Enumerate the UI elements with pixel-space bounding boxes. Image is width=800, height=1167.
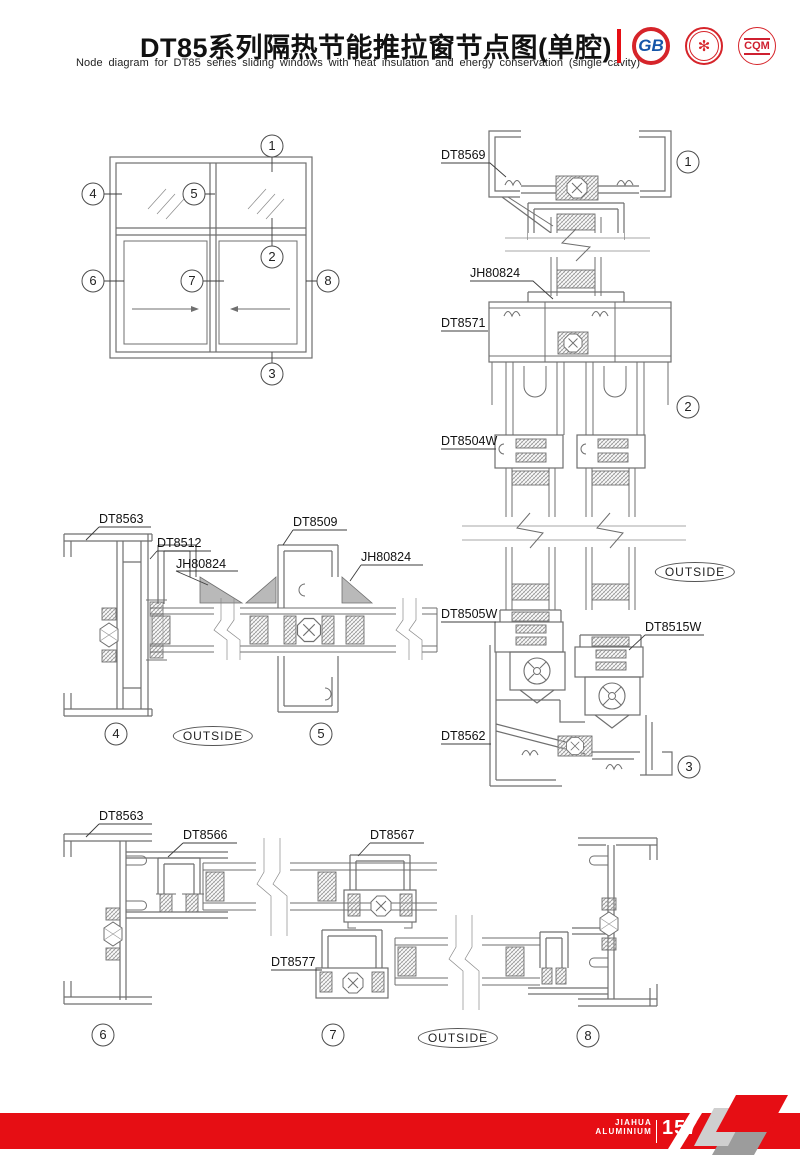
- section-callout-6: 6: [92, 1024, 114, 1046]
- callout-1: 1: [261, 135, 283, 157]
- gb-logo-text: GB: [638, 36, 664, 56]
- callout-7: 7: [181, 270, 203, 292]
- label-dt8569: DT8569: [441, 148, 485, 162]
- vertical-section-drawing: [441, 131, 704, 786]
- label-dt8566: DT8566: [183, 828, 227, 842]
- label-jh80824-right: JH80824: [361, 550, 411, 564]
- outside-label-vertical: OUTSIDE: [655, 562, 735, 582]
- diagram-canvas: .ln{stroke:#6f6f6f;fill:none;stroke-widt…: [0, 0, 800, 1167]
- seal-star-icon: ✻: [689, 31, 719, 61]
- callout-3: 3: [261, 363, 283, 385]
- footer-brand-line2: ALUMINIUM: [595, 1127, 652, 1136]
- footer-brand: JIAHUA ALUMINIUM: [595, 1118, 652, 1136]
- section-callout-2: 2: [677, 396, 699, 418]
- section-callout-4: 4: [105, 723, 127, 745]
- section-callout-7: 7: [322, 1024, 344, 1046]
- page-number: 157: [662, 1117, 698, 1140]
- certification-seal-icon: ✻: [685, 27, 723, 65]
- catalog-page: DT85系列隔热节能推拉窗节点图(单腔) Node diagram for DT…: [0, 0, 800, 1167]
- elevation-diagram: [82, 135, 339, 385]
- section-callout-3: 3: [678, 756, 700, 778]
- label-dt8563-top: DT8563: [99, 512, 143, 526]
- certification-logo-cqm: CQM: [738, 27, 776, 65]
- page-subtitle: Node diagram for DT85 series sliding win…: [76, 57, 614, 69]
- callout-5: 5: [183, 183, 205, 205]
- label-dt8505w: DT8505W: [441, 607, 497, 621]
- callout-8: 8: [317, 270, 339, 292]
- label-dt8504w: DT8504W: [441, 434, 497, 448]
- section-callout-1: 1: [677, 151, 699, 173]
- horizontal-section-bottom-drawing: [64, 824, 657, 1047]
- label-jh80824-vertical: JH80824: [470, 266, 520, 280]
- header-divider: [617, 29, 621, 63]
- cqm-logo-text: CQM: [744, 38, 770, 55]
- label-dt8567: DT8567: [370, 828, 414, 842]
- section-callout-8: 8: [577, 1025, 599, 1047]
- callout-4: 4: [82, 183, 104, 205]
- callout-2: 2: [261, 246, 283, 268]
- label-dt8512: DT8512: [157, 536, 201, 550]
- label-dt8509: DT8509: [293, 515, 337, 529]
- label-dt8571: DT8571: [441, 316, 485, 330]
- label-dt8577: DT8577: [271, 955, 315, 969]
- section-callout-5: 5: [310, 723, 332, 745]
- label-dt8515w: DT8515W: [645, 620, 701, 634]
- certification-logo-gb: GB: [632, 27, 670, 65]
- label-jh80824-left: JH80824: [176, 557, 226, 571]
- outside-label-bottom: OUTSIDE: [418, 1028, 498, 1048]
- label-dt8562: DT8562: [441, 729, 485, 743]
- label-dt8563-bottom: DT8563: [99, 809, 143, 823]
- callout-6: 6: [82, 270, 104, 292]
- footer-brand-line1: JIAHUA: [595, 1118, 652, 1127]
- footer-separator: [656, 1120, 657, 1143]
- outside-label-middle: OUTSIDE: [173, 726, 253, 746]
